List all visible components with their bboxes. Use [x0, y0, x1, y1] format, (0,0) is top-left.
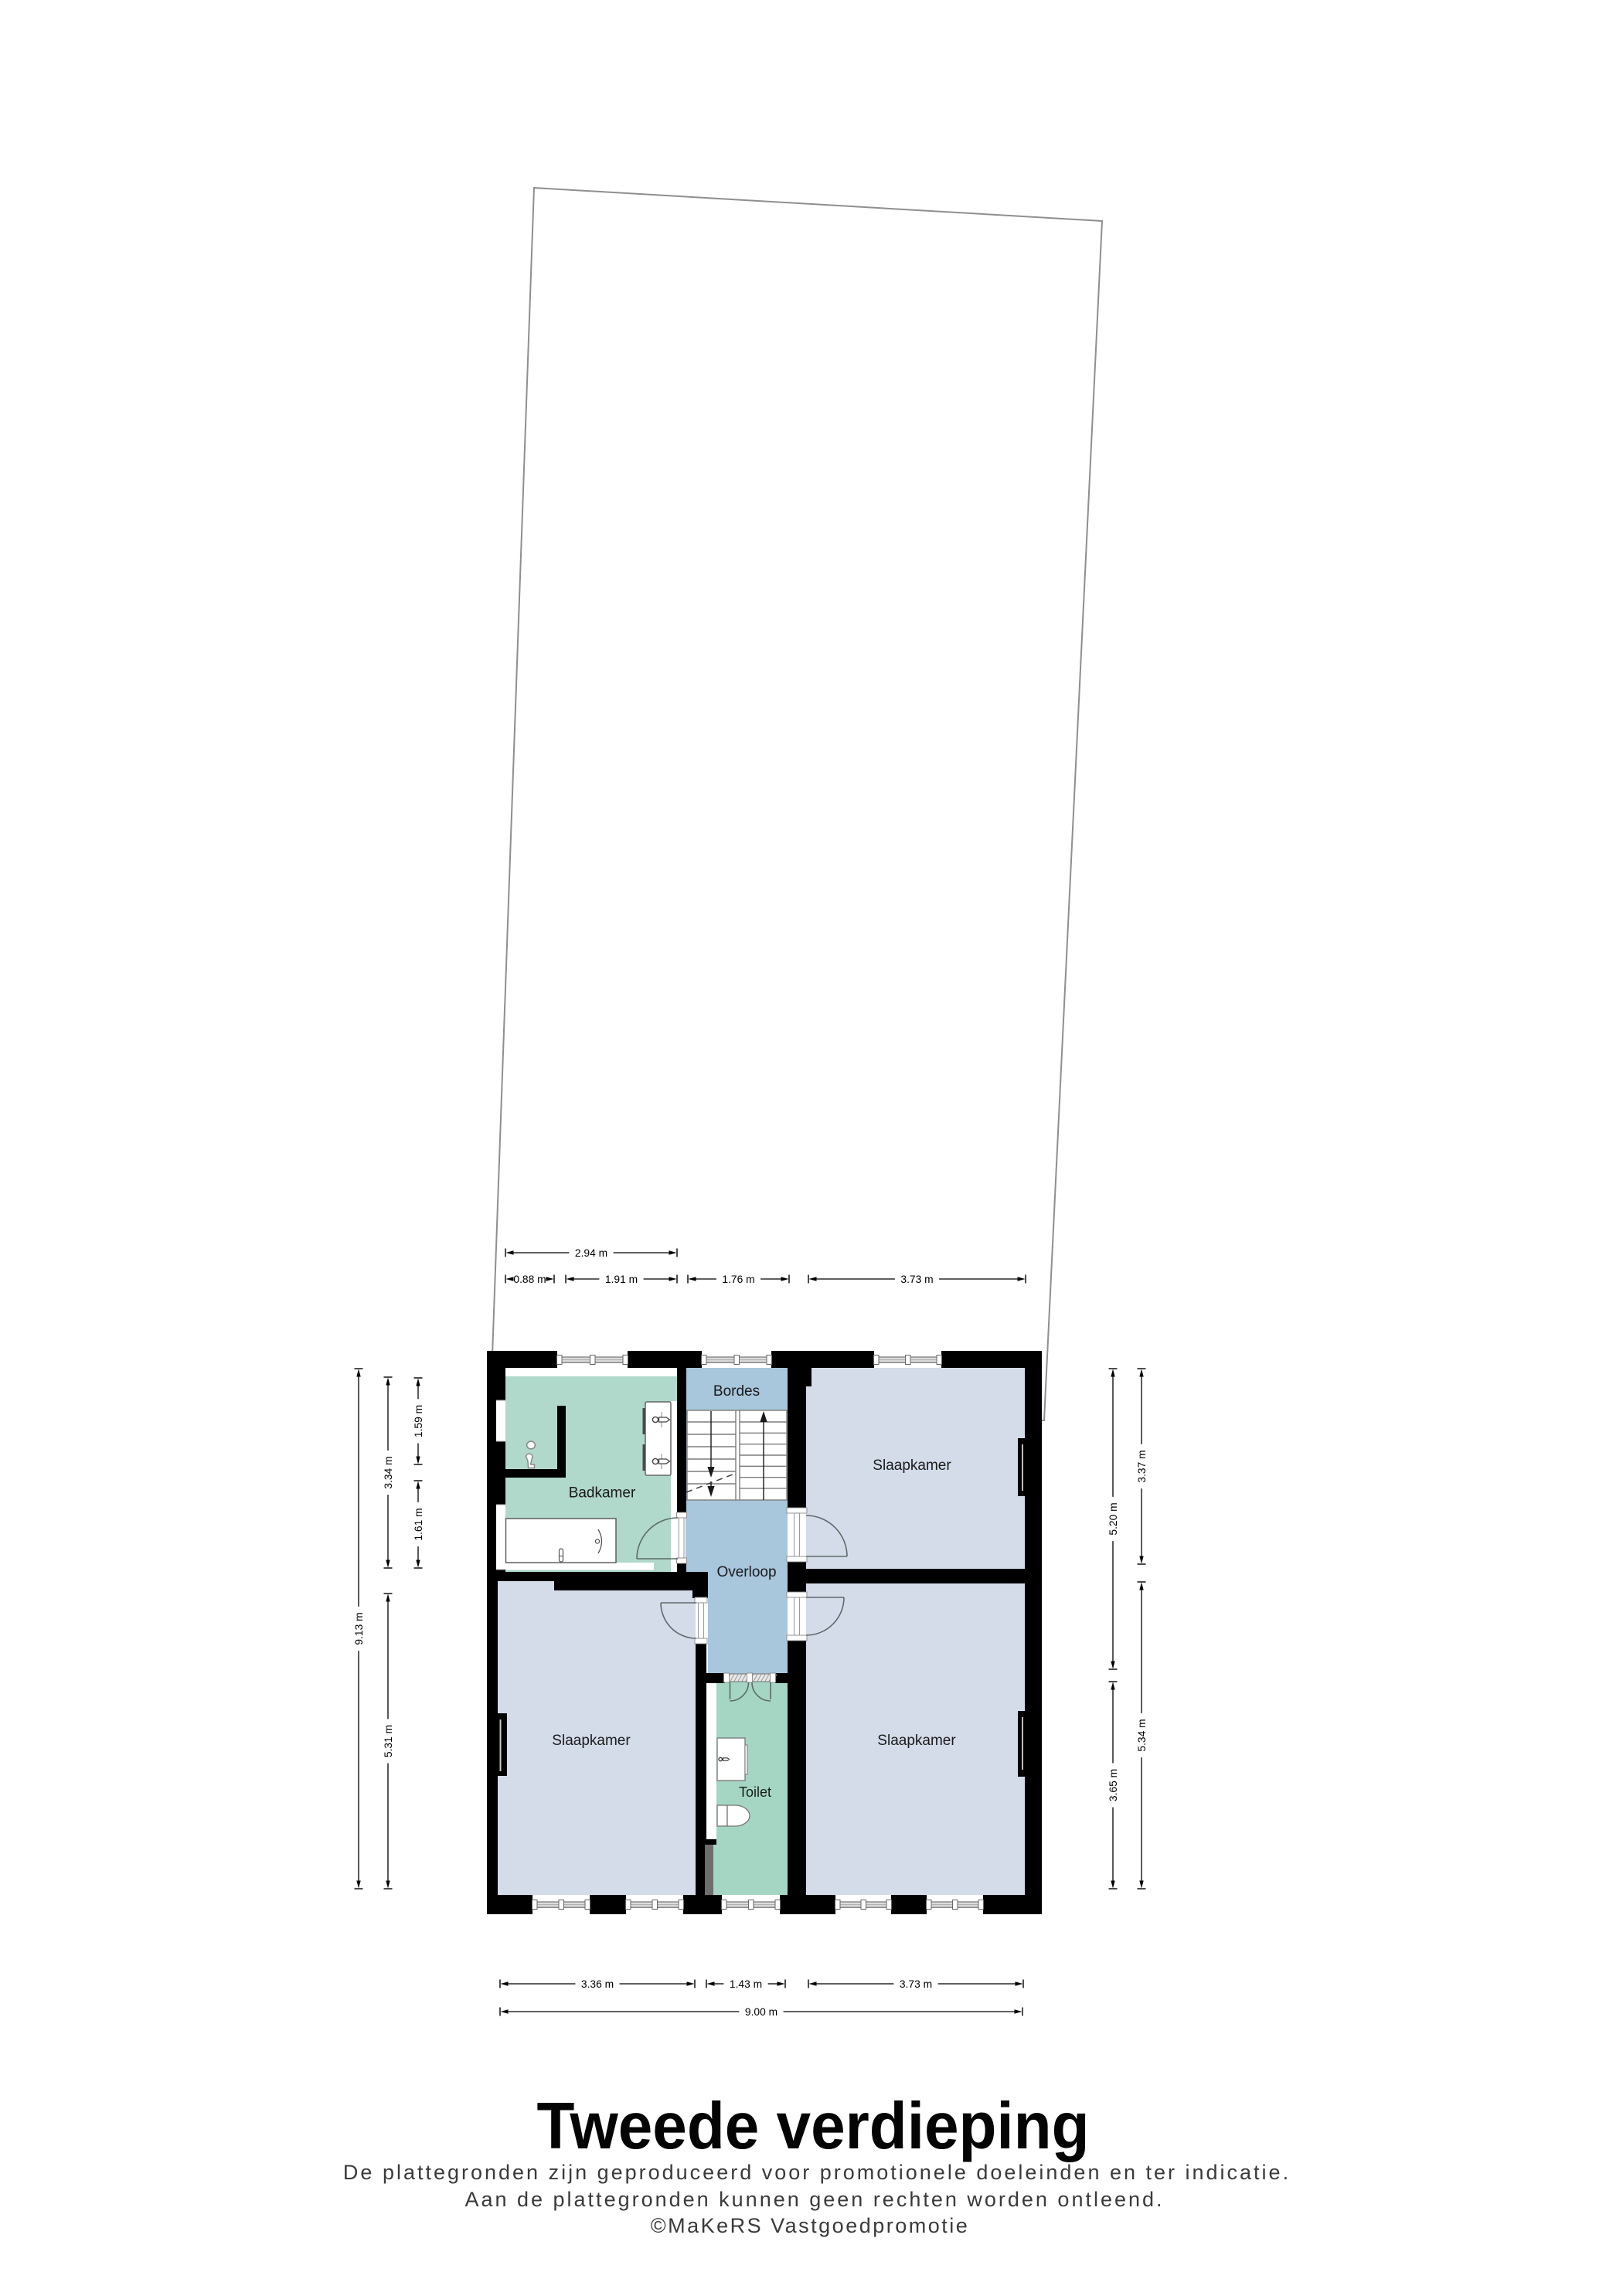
svg-text:De plattegronden zijn geproduc: De plattegronden zijn geproduceerd voor … [343, 2161, 1291, 2184]
svg-text:©MaKeRS Vastgoedpromotie: ©MaKeRS Vastgoedpromotie [651, 2214, 970, 2237]
svg-text:Slaapkamer: Slaapkamer [877, 1733, 956, 1749]
svg-text:2.94 m: 2.94 m [575, 1247, 607, 1259]
svg-text:1.61 m: 1.61 m [413, 1508, 424, 1540]
svg-text:1.43 m: 1.43 m [730, 1978, 762, 1990]
svg-text:Bordes: Bordes [713, 1383, 760, 1400]
svg-text:0.88 m: 0.88 m [513, 1274, 546, 1285]
svg-text:3.65 m: 3.65 m [1108, 1769, 1119, 1801]
svg-text:Toilet: Toilet [739, 1784, 771, 1800]
svg-text:5.31 m: 5.31 m [383, 1725, 394, 1757]
svg-text:3.36 m: 3.36 m [581, 1978, 614, 1990]
svg-text:Tweede verdieping: Tweede verdieping [537, 2090, 1090, 2163]
svg-text:Overloop: Overloop [716, 1564, 776, 1580]
svg-text:Badkamer: Badkamer [569, 1485, 636, 1502]
svg-text:3.37 m: 3.37 m [1136, 1450, 1148, 1482]
svg-text:3.73 m: 3.73 m [900, 1978, 932, 1990]
svg-text:1.91 m: 1.91 m [605, 1274, 638, 1285]
svg-text:3.34 m: 3.34 m [383, 1456, 394, 1488]
svg-text:5.34 m: 5.34 m [1136, 1719, 1148, 1751]
svg-text:9.00 m: 9.00 m [745, 2006, 777, 2018]
svg-text:9.13 m: 9.13 m [353, 1612, 365, 1645]
svg-text:5.20 m: 5.20 m [1108, 1502, 1119, 1535]
svg-text:Slaapkamer: Slaapkamer [873, 1458, 951, 1474]
svg-text:1.59 m: 1.59 m [413, 1405, 424, 1437]
svg-text:1.76 m: 1.76 m [722, 1274, 754, 1285]
svg-text:Slaapkamer: Slaapkamer [552, 1733, 631, 1749]
svg-text:Aan de plattegronden kunnen ge: Aan de plattegronden kunnen geen rechten… [464, 2188, 1164, 2211]
svg-text:3.73 m: 3.73 m [900, 1274, 933, 1285]
